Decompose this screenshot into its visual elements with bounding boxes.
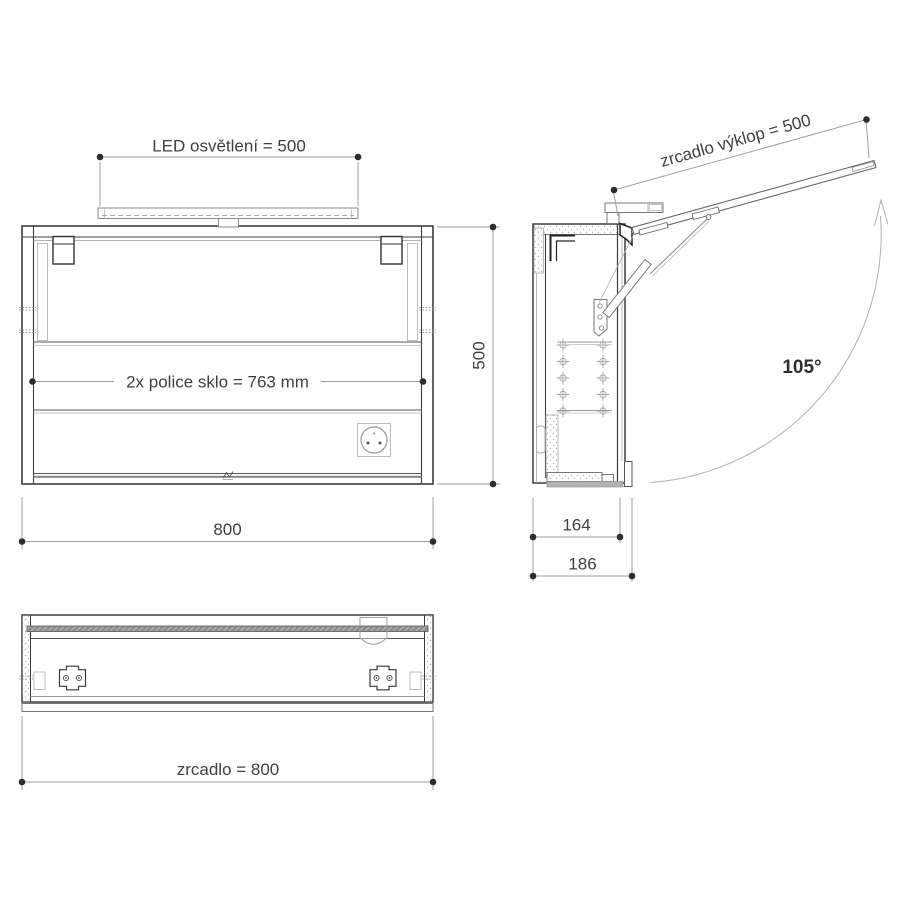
inner-depth-label: 164 (562, 516, 590, 535)
height-dimension-label: 500 (470, 341, 489, 369)
front-view (19, 208, 436, 484)
outer-depth-label: 186 (568, 555, 596, 574)
mirror-width-label: zrcadlo = 800 (177, 760, 280, 779)
opening-arc (651, 200, 888, 483)
mirror-bottom-rail (625, 462, 633, 487)
dim-mirror-width: zrcadlo = 800 (19, 716, 437, 790)
shelf-dimension-label: 2x police sklo = 763 mm (126, 373, 309, 392)
led-bar-icon (98, 208, 358, 227)
hinge-left-icon (53, 237, 74, 265)
mounting-bracket-left-icon (60, 666, 86, 690)
mirror-panel-open (632, 161, 876, 236)
dim-front-width: 800 (19, 497, 437, 549)
mirror-strip (27, 626, 428, 632)
strut-hinge-plate (594, 300, 607, 337)
mirror-cabinet-drawing: LED osvětlení = 500 2x police sklo = 763… (0, 0, 900, 900)
side-view (533, 161, 876, 488)
led-dimension-label: LED osvětlení = 500 (152, 137, 306, 156)
width-dimension-label: 800 (213, 520, 241, 539)
socket-side-profile (537, 426, 546, 453)
hinge-right-icon (381, 237, 402, 265)
bottom-view (19, 615, 436, 712)
technical-drawing-page: LED osvětlení = 500 2x police sklo = 763… (0, 0, 900, 900)
top-panel-section (534, 225, 620, 235)
opening-angle-label: 105° (782, 357, 821, 378)
dim-led-width: LED osvětlení = 500 (97, 137, 362, 207)
power-socket-icon (358, 424, 391, 457)
led-bar-side-icon (605, 203, 663, 224)
dim-front-height: 500 (437, 224, 500, 488)
mounting-bracket-right-icon (370, 666, 396, 690)
